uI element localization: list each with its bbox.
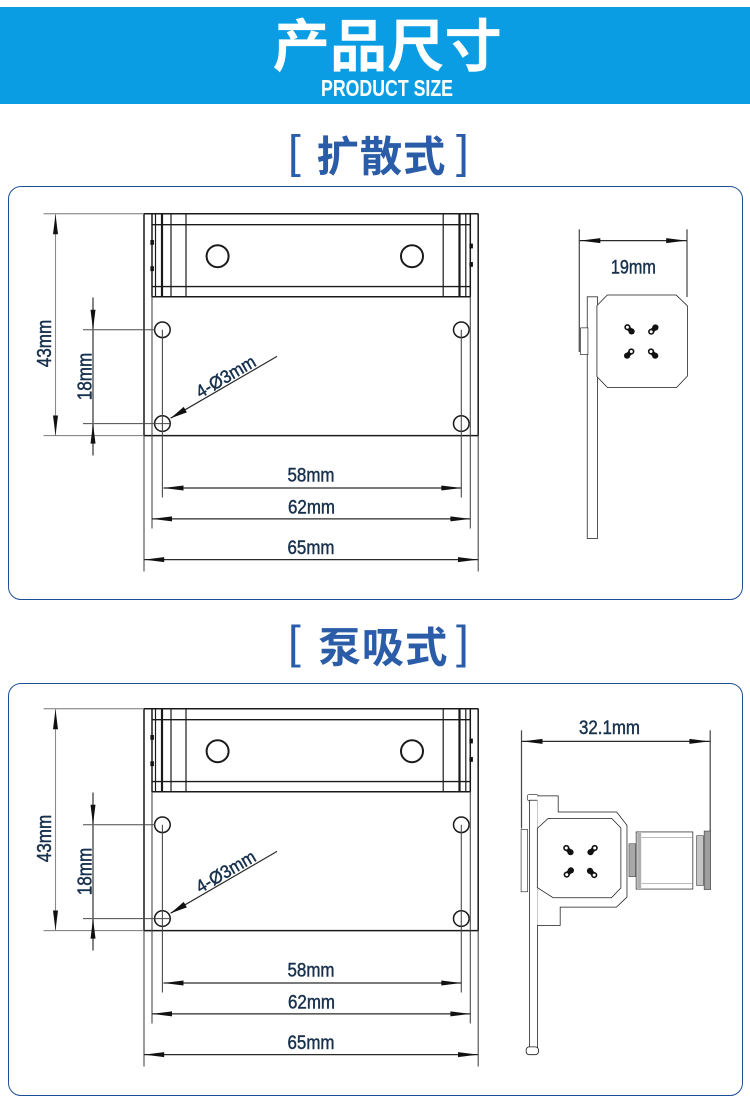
svg-text:19mm: 19mm — [611, 258, 656, 279]
svg-text:4-Ø3mm: 4-Ø3mm — [192, 351, 259, 401]
svg-text:43mm: 43mm — [34, 320, 56, 368]
svg-text:65mm: 65mm — [288, 538, 335, 559]
svg-text:62mm: 62mm — [288, 498, 335, 519]
svg-text:18mm: 18mm — [74, 353, 96, 401]
svg-text:32.1mm: 32.1mm — [579, 718, 640, 739]
svg-text:58mm: 58mm — [288, 465, 335, 486]
